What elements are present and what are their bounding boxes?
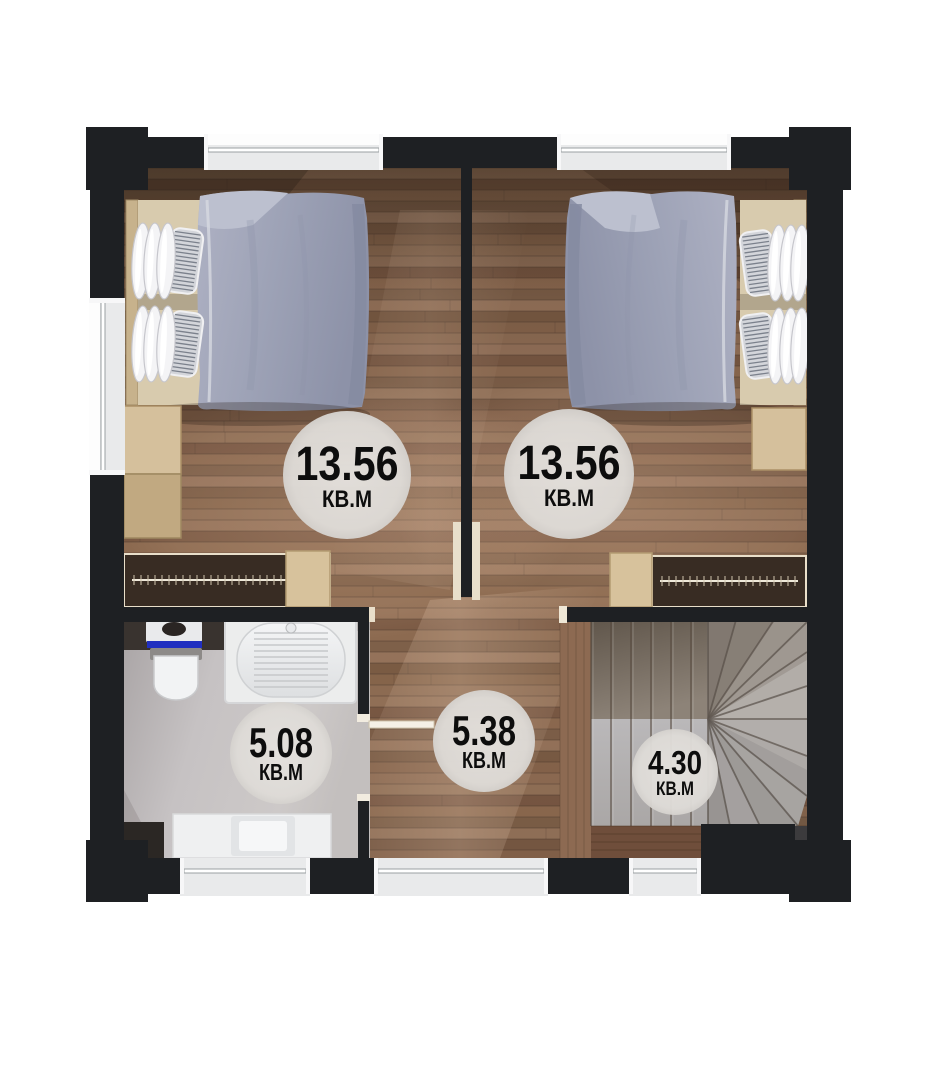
svg-text:КВ.М: КВ.М: [544, 485, 594, 512]
svg-text:КВ.М: КВ.М: [322, 486, 372, 513]
svg-text:КВ.М: КВ.М: [462, 747, 506, 773]
svg-text:13.56: 13.56: [518, 437, 621, 490]
svg-text:КВ.М: КВ.М: [259, 759, 303, 785]
svg-text:13.56: 13.56: [296, 438, 399, 491]
svg-text:КВ.М: КВ.М: [656, 779, 694, 800]
svg-text:4.30: 4.30: [648, 744, 702, 781]
